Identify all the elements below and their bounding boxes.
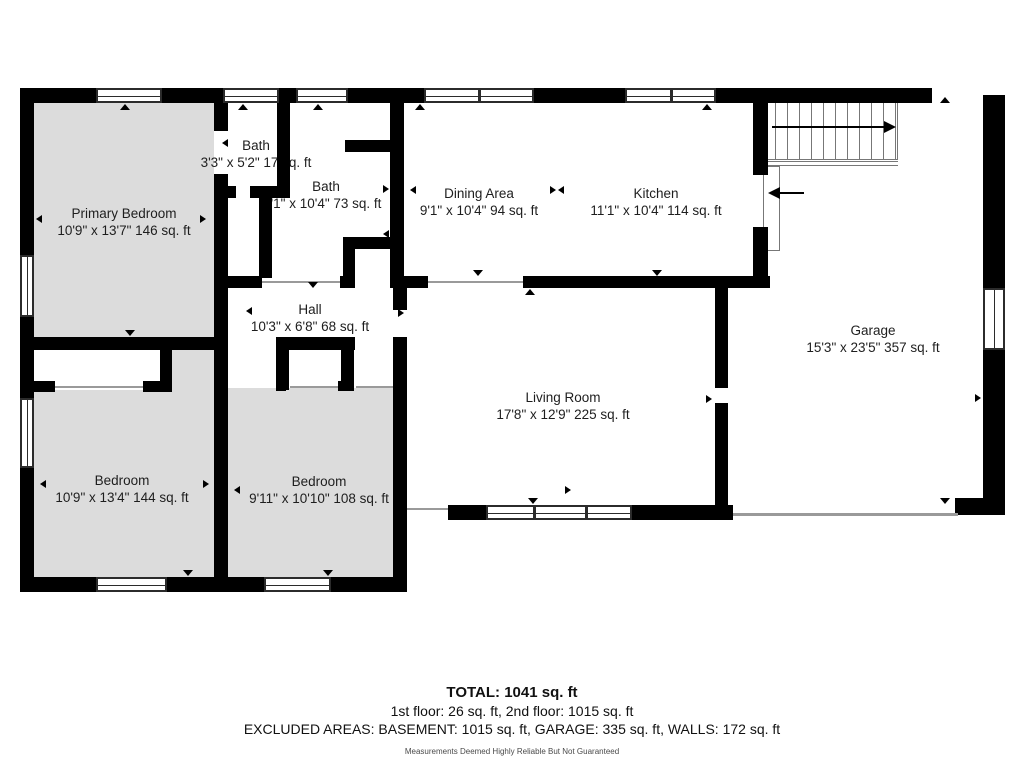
window xyxy=(223,88,279,103)
room-label-bedroom1: Bedroom 10'9" x 13'4" 144 sq. ft xyxy=(55,473,188,506)
wall-bath2-left xyxy=(259,195,272,278)
door-marker-icon xyxy=(203,480,209,488)
room-dims: 17'8" x 12'9" 225 sq. ft xyxy=(496,407,629,424)
door-marker-icon xyxy=(383,230,389,238)
door-marker-icon xyxy=(565,486,571,494)
wall-garage-bottom-corner xyxy=(955,498,1005,515)
door-marker-icon xyxy=(222,139,228,147)
room-label-bedroom2: Bedroom 9'11" x 10'10" 108 sq. ft xyxy=(249,474,389,507)
landing-arrow-head-icon xyxy=(768,187,780,199)
hall-opening-line xyxy=(262,281,340,283)
room-dims: 3'3" x 5'2" 17 sq. ft xyxy=(201,155,312,172)
stair-arrow-head-icon xyxy=(884,121,896,133)
window xyxy=(296,88,348,103)
door-marker-icon xyxy=(383,185,389,193)
door-marker-icon xyxy=(706,395,712,403)
room-label-dining-area: Dining Area 9'1" x 10'4" 94 sq. ft xyxy=(420,186,538,219)
floor-plan: Primary Bedroom 10'9" x 13'7" 146 sq. ft… xyxy=(0,0,1024,768)
door-marker-icon xyxy=(410,186,416,194)
door-marker-icon xyxy=(120,104,130,110)
door-marker-icon xyxy=(234,486,240,494)
room-dims: 10'3" x 6'8" 68 sq. ft xyxy=(251,319,369,336)
wall-living-garage-lower xyxy=(715,403,728,508)
door-marker-icon xyxy=(558,186,564,194)
wall-primary-right-lower xyxy=(214,174,228,350)
wall-bath1-right xyxy=(277,101,290,198)
room-dims: 10'9" x 13'7" 146 sq. ft xyxy=(57,223,190,240)
wall-bed1-bed2-divider xyxy=(214,350,228,577)
room-name: Living Room xyxy=(496,390,629,407)
stairs xyxy=(763,98,898,160)
floors-area-text: 1st floor: 26 sq. ft, 2nd floor: 1015 sq… xyxy=(0,702,1024,720)
room-name: Bedroom xyxy=(249,474,389,491)
room-name: Primary Bedroom xyxy=(57,206,190,223)
window xyxy=(20,398,34,468)
wall-closet2-bottom-b xyxy=(338,381,354,391)
room-name: Bath xyxy=(201,138,312,155)
door-marker-icon xyxy=(183,570,193,576)
wall-bath2-top xyxy=(345,140,390,152)
room-name: Hall xyxy=(251,302,369,319)
stairs-edge xyxy=(763,161,898,166)
door-marker-icon xyxy=(975,394,981,402)
door-marker-icon xyxy=(473,270,483,276)
wall-primary-right-upper xyxy=(214,101,228,131)
window xyxy=(486,505,632,520)
room-name: Bedroom xyxy=(55,473,188,490)
room-dims: 9'1" x 10'4" 94 sq. ft xyxy=(420,203,538,220)
wall-living-bottom-a xyxy=(448,505,486,520)
door-marker-icon xyxy=(40,480,46,488)
wall-shower-horiz xyxy=(355,237,390,249)
closet2-door-line xyxy=(290,386,338,388)
door-marker-icon xyxy=(398,309,404,317)
window xyxy=(424,88,534,103)
door-marker-icon xyxy=(313,104,323,110)
landing-direction-arrow xyxy=(778,192,804,194)
room-label-bath1: Bath 3'3" x 5'2" 17 sq. ft xyxy=(201,138,312,171)
garage-door-line xyxy=(733,513,958,516)
wall-closet1-divider xyxy=(160,350,172,385)
window xyxy=(20,255,34,317)
closet1-door-line xyxy=(55,386,143,388)
window xyxy=(264,577,331,592)
wall-dining-left xyxy=(390,101,404,288)
door-marker-icon xyxy=(308,282,318,288)
summary-footer: TOTAL: 1041 sq. ft 1st floor: 26 sq. ft,… xyxy=(0,684,1024,756)
total-area-text: TOTAL: 1041 sq. ft xyxy=(0,684,1024,702)
room-label-garage: Garage 15'3" x 23'5" 357 sq. ft xyxy=(806,323,939,356)
wall-closet2-bottom-a xyxy=(276,381,286,391)
room-name: Garage xyxy=(806,323,939,340)
window xyxy=(983,288,1005,350)
wall-living-top xyxy=(523,276,770,288)
wall-kitchen-right-lower xyxy=(753,227,768,288)
door-marker-icon xyxy=(246,307,252,315)
door-marker-icon xyxy=(36,215,42,223)
window xyxy=(96,88,162,103)
room-dims: 11'1" x 10'4" 114 sq. ft xyxy=(590,203,721,220)
dining-living-opening-line xyxy=(428,281,523,283)
wall-bed2-right xyxy=(393,337,407,592)
wall-closet1-bottom-a xyxy=(20,381,55,392)
wall-closet-strip-top xyxy=(20,337,228,350)
door-marker-icon xyxy=(550,186,556,194)
door-marker-icon xyxy=(702,104,712,110)
wall-hall-top-a xyxy=(214,276,262,288)
door-marker-icon xyxy=(940,97,950,103)
wall-living-garage-upper xyxy=(715,288,728,388)
room-dims: 9'11" x 10'10" 108 sq. ft xyxy=(249,491,389,508)
door-marker-icon xyxy=(238,104,248,110)
excluded-areas-text: EXCLUDED AREAS: BASEMENT: 1015 sq. ft, G… xyxy=(0,720,1024,738)
window xyxy=(625,88,716,103)
wall-dining-bottom-a xyxy=(390,276,428,288)
window xyxy=(96,577,167,592)
room-name: Kitchen xyxy=(590,186,721,203)
door-marker-icon xyxy=(125,330,135,336)
door-marker-icon xyxy=(415,104,425,110)
room-dims: 15'3" x 23'5" 357 sq. ft xyxy=(806,340,939,357)
disclaimer-text: Measurements Deemed Highly Reliable But … xyxy=(0,747,1024,756)
wall-bedrooms-bottom xyxy=(20,577,407,592)
door-marker-icon xyxy=(652,270,662,276)
wall-hall-right-post xyxy=(393,288,407,310)
door-marker-icon xyxy=(284,139,290,147)
wall-hall-top-post xyxy=(340,276,355,288)
wall-bath1-bottom-a xyxy=(214,186,236,198)
room-name: Dining Area xyxy=(420,186,538,203)
closet3-door-line xyxy=(356,386,394,388)
wall-closet2-top xyxy=(276,337,355,350)
stair-direction-arrow xyxy=(772,126,884,128)
door-marker-icon xyxy=(323,570,333,576)
room-label-kitchen: Kitchen 11'1" x 10'4" 114 sq. ft xyxy=(590,186,721,219)
room-label-living-room: Living Room 17'8" x 12'9" 225 sq. ft xyxy=(496,390,629,423)
door-marker-icon xyxy=(940,498,950,504)
patio-door-line xyxy=(407,508,448,510)
wall-kitchen-right-upper xyxy=(753,95,768,175)
room-label-hall: Hall 10'3" x 6'8" 68 sq. ft xyxy=(251,302,369,335)
wall-closet1-bottom-b xyxy=(143,381,172,392)
door-marker-icon xyxy=(528,498,538,504)
door-marker-icon xyxy=(200,215,206,223)
room-dims: 10'9" x 13'4" 144 sq. ft xyxy=(55,490,188,507)
door-marker-icon xyxy=(525,289,535,295)
room-label-primary-bedroom: Primary Bedroom 10'9" x 13'7" 146 sq. ft xyxy=(57,206,190,239)
